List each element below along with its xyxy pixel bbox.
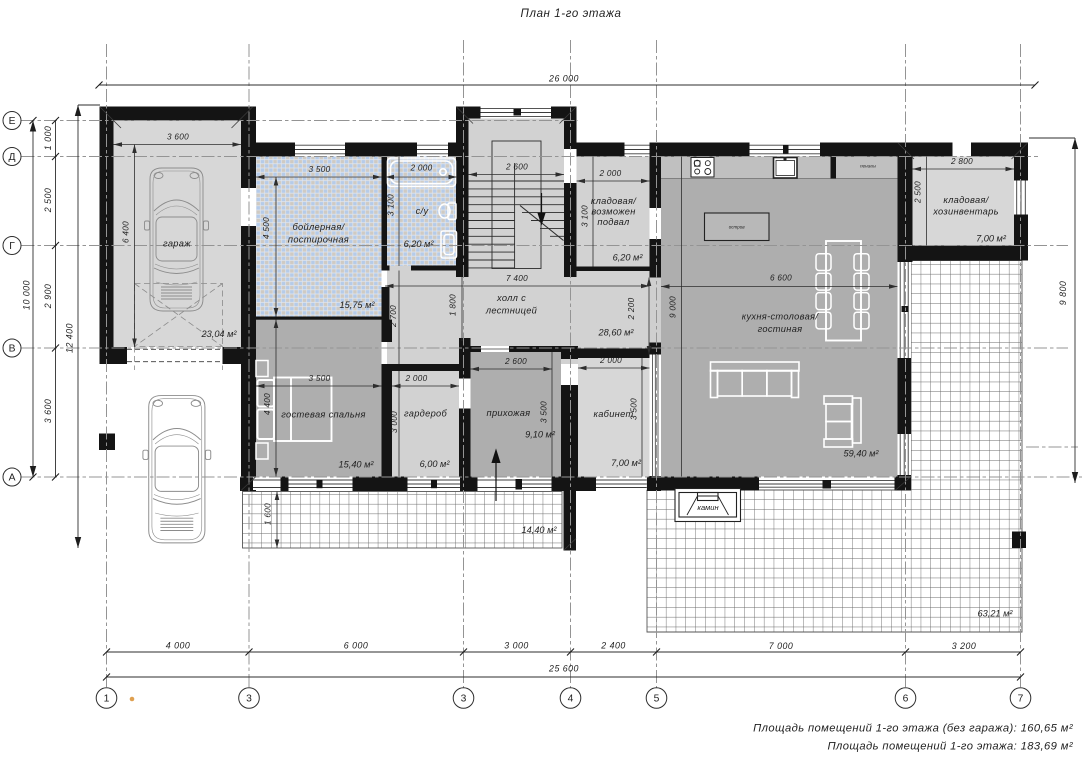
svg-text:Д: Д xyxy=(9,152,16,163)
svg-text:59,40 м²: 59,40 м² xyxy=(844,449,880,459)
svg-text:А: А xyxy=(9,473,16,484)
svg-text:6,20 м²: 6,20 м² xyxy=(613,253,644,263)
svg-text:гостевая спальня: гостевая спальня xyxy=(281,410,365,420)
svg-text:кабинет: кабинет xyxy=(594,409,634,419)
svg-text:3 600: 3 600 xyxy=(43,399,53,424)
svg-text:6,20 м²: 6,20 м² xyxy=(404,239,435,249)
svg-text:Площадь помещений 1-го этажа:: Площадь помещений 1-го этажа: 183,69 м² xyxy=(828,741,1074,753)
svg-text:2 800: 2 800 xyxy=(950,157,973,166)
svg-text:25 600: 25 600 xyxy=(548,664,579,674)
svg-text:Г: Г xyxy=(9,241,15,252)
svg-text:2 000: 2 000 xyxy=(410,164,433,173)
svg-text:3 500: 3 500 xyxy=(309,165,331,174)
svg-text:остров: остров xyxy=(729,225,745,230)
svg-text:прихожая: прихожая xyxy=(487,408,531,418)
svg-text:23,04 м²: 23,04 м² xyxy=(201,329,238,339)
svg-text:3 000: 3 000 xyxy=(504,641,529,651)
svg-text:2 000: 2 000 xyxy=(599,169,622,178)
svg-text:3: 3 xyxy=(246,694,252,705)
svg-text:7 400: 7 400 xyxy=(506,274,528,283)
svg-text:3 100: 3 100 xyxy=(387,194,396,216)
svg-text:9 000: 9 000 xyxy=(669,296,678,318)
svg-text:15,75 м²: 15,75 м² xyxy=(340,300,376,310)
svg-text:10 000: 10 000 xyxy=(22,280,32,310)
svg-text:12 400: 12 400 xyxy=(65,323,75,353)
svg-text:камин: камин xyxy=(697,503,718,512)
svg-text:3 500: 3 500 xyxy=(540,401,549,423)
svg-text:4 500: 4 500 xyxy=(262,217,271,239)
svg-text:2 000: 2 000 xyxy=(405,374,428,383)
svg-text:кухня-столовая/: кухня-столовая/ xyxy=(742,312,820,322)
svg-text:3 500: 3 500 xyxy=(309,374,331,383)
svg-text:4 000: 4 000 xyxy=(166,641,191,651)
svg-text:2 600: 2 600 xyxy=(504,357,527,366)
svg-text:63,21 м²: 63,21 м² xyxy=(978,609,1014,619)
svg-text:9,10 м²: 9,10 м² xyxy=(525,430,556,440)
svg-text:28,60 м²: 28,60 м² xyxy=(598,328,635,338)
svg-text:План 1-го этажа: План 1-го этажа xyxy=(521,8,622,20)
svg-text:кладовая/: кладовая/ xyxy=(591,196,637,206)
svg-text:гардероб: гардероб xyxy=(404,409,448,419)
svg-text:возможен: возможен xyxy=(591,207,635,217)
svg-text:2 000: 2 000 xyxy=(599,356,622,365)
svg-text:14,40 м²: 14,40 м² xyxy=(522,525,558,535)
svg-text:с/у: с/у xyxy=(416,206,430,216)
svg-text:6,00 м²: 6,00 м² xyxy=(420,459,451,469)
svg-text:3: 3 xyxy=(461,694,467,705)
svg-text:гостиная: гостиная xyxy=(758,324,803,334)
svg-text:4 400: 4 400 xyxy=(263,393,272,415)
svg-text:15,40 м²: 15,40 м² xyxy=(339,460,375,470)
svg-text:3 100: 3 100 xyxy=(581,205,590,227)
svg-text:холл с: холл с xyxy=(496,293,526,303)
svg-text:7,00 м²: 7,00 м² xyxy=(611,458,642,468)
svg-text:Е: Е xyxy=(9,116,16,127)
svg-text:лестницей: лестницей xyxy=(485,306,537,316)
svg-text:кладовая/: кладовая/ xyxy=(943,195,989,205)
svg-text:5: 5 xyxy=(654,694,660,705)
svg-text:1 000: 1 000 xyxy=(43,126,53,151)
svg-text:3 200: 3 200 xyxy=(952,641,977,651)
svg-text:6 000: 6 000 xyxy=(344,641,369,651)
svg-text:подвал: подвал xyxy=(597,217,630,227)
svg-text:1 600: 1 600 xyxy=(264,503,273,525)
svg-text:3 600: 3 600 xyxy=(167,133,189,142)
svg-text:2 600: 2 600 xyxy=(505,163,528,172)
svg-text:2 400: 2 400 xyxy=(600,641,626,651)
svg-text:1: 1 xyxy=(104,694,110,705)
svg-text:пеналы: пеналы xyxy=(860,164,876,169)
svg-text:7,00 м²: 7,00 м² xyxy=(976,234,1007,244)
svg-text:6 600: 6 600 xyxy=(770,274,792,283)
svg-text:9 800: 9 800 xyxy=(1058,281,1068,306)
svg-text:7: 7 xyxy=(1018,694,1024,705)
svg-text:Площадь помещений 1-го этажа (: Площадь помещений 1-го этажа (без гаража… xyxy=(753,723,1074,735)
svg-text:2 700: 2 700 xyxy=(389,305,398,328)
svg-text:В: В xyxy=(9,344,16,355)
svg-text:3 000: 3 000 xyxy=(390,411,399,433)
svg-text:7 000: 7 000 xyxy=(769,641,794,651)
svg-text:6: 6 xyxy=(903,694,909,705)
svg-text:26 000: 26 000 xyxy=(548,74,579,84)
svg-text:2 900: 2 900 xyxy=(43,284,53,310)
svg-text:постирочная: постирочная xyxy=(288,235,349,245)
svg-text:бойлерная/: бойлерная/ xyxy=(293,222,346,232)
svg-text:4: 4 xyxy=(568,694,574,705)
svg-text:2 200: 2 200 xyxy=(627,297,636,320)
svg-text:гараж: гараж xyxy=(163,239,191,249)
svg-text:2 500: 2 500 xyxy=(43,188,53,214)
svg-text:2 500: 2 500 xyxy=(914,181,923,204)
svg-text:хозинвентарь: хозинвентарь xyxy=(932,207,999,217)
svg-text:1 800: 1 800 xyxy=(449,294,458,316)
svg-text:6 400: 6 400 xyxy=(122,221,131,243)
